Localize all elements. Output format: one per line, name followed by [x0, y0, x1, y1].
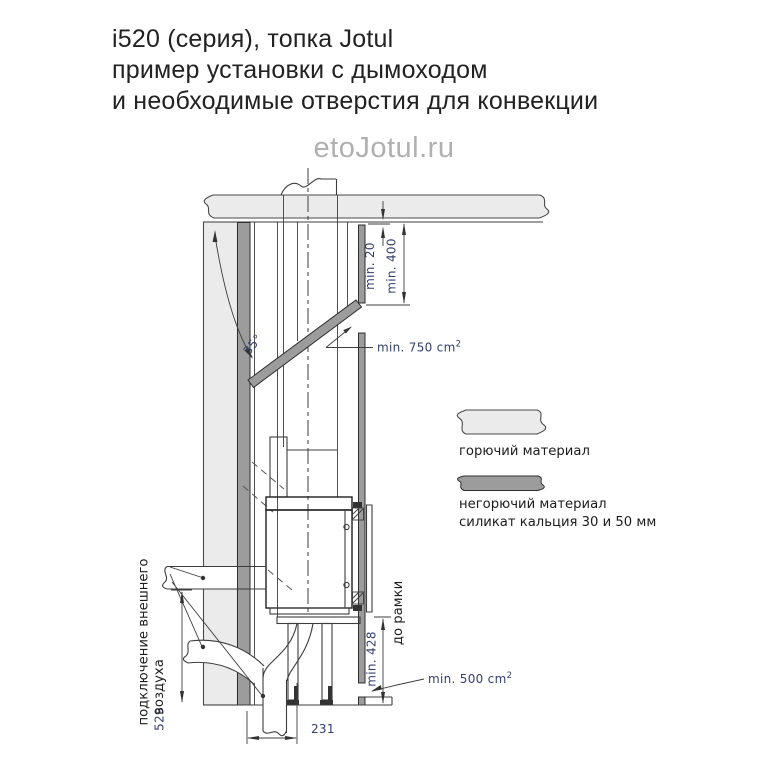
dim-min750-label: min. 750 cm2 — [377, 340, 461, 355]
air-connection-label: подключение внешнего воздуха — [137, 558, 168, 725]
diagonal-noncombustible-panel — [248, 300, 362, 388]
legend: горючий материал негорючий материал сили… — [457, 410, 656, 530]
dim-231-label: 231 — [311, 722, 335, 736]
page: i520 (серия), топка Jotul пример установ… — [0, 0, 768, 768]
legend-combustible-swatch — [457, 410, 545, 434]
installation-diagram: min. 20 min. 400 35° min. 750 cm2 5 — [0, 0, 768, 768]
wall-combustible — [204, 222, 238, 705]
dim-min428-label: min. 428 — [365, 631, 379, 687]
hearth-plate — [277, 617, 360, 624]
dim-min400-label: min. 400 — [385, 238, 399, 294]
legend-combustible-label: горючий материал — [459, 444, 590, 459]
ceiling-combustible — [204, 195, 548, 218]
dimension-min428: min. 428 до рамки — [365, 581, 407, 704]
to-frame-label: до рамки — [391, 581, 406, 645]
legend-noncombustible-label-2: силикат кальция 30 и 50 мм — [459, 515, 656, 530]
air-label-line-2: воздуха — [152, 659, 167, 715]
dim-min500-label: min. 500 cm2 — [428, 671, 512, 686]
legend-noncombustible-swatch — [458, 476, 545, 491]
dimension-min750: min. 750 cm2 — [326, 327, 461, 355]
dim-min20-label: min. 20 — [363, 242, 377, 290]
left-noncombustible-panel — [238, 223, 251, 706]
dimension-min500: min. 500 cm2 — [371, 671, 512, 692]
legend-noncombustible-label-1: негорючий материал — [459, 497, 607, 512]
air-label-line-1: подключение внешнего — [137, 558, 152, 725]
flue-adapter — [270, 437, 337, 497]
